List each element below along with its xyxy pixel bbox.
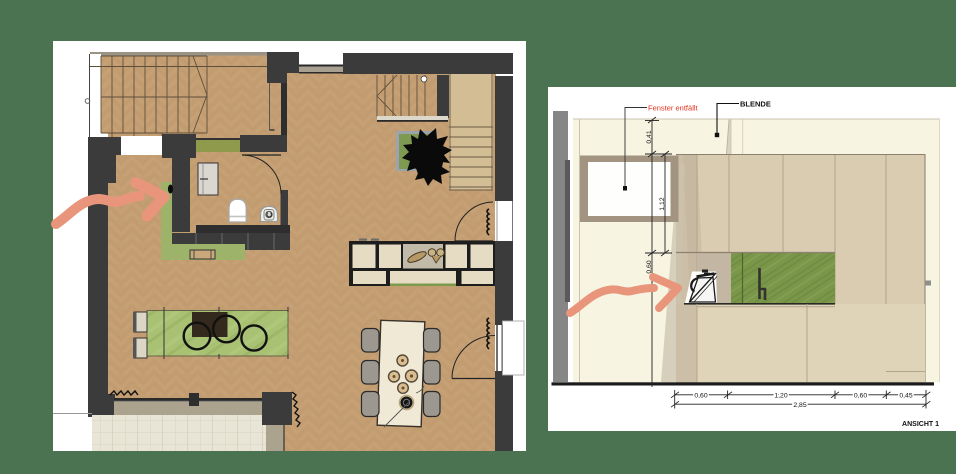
svg-text:0,60: 0,60 [854,392,867,399]
svg-text:BLENDE: BLENDE [740,100,771,109]
svg-text:0,60: 0,60 [694,392,707,399]
svg-text:1,20: 1,20 [774,392,787,399]
svg-text:1,12: 1,12 [659,197,666,210]
svg-text:0,41: 0,41 [646,130,653,143]
svg-text:Fenster entfällt: Fenster entfällt [648,104,699,113]
svg-text:0,45: 0,45 [899,392,912,399]
svg-text:2,85: 2,85 [793,402,806,409]
svg-text:ANSICHT 1: ANSICHT 1 [902,421,939,428]
svg-text:0,60: 0,60 [646,260,653,273]
